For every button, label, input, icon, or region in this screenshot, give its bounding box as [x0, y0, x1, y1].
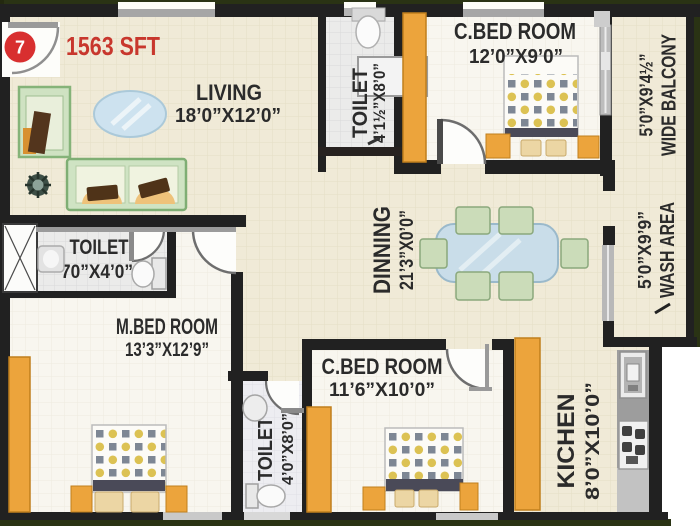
svg-text:LIVING: LIVING — [196, 80, 262, 105]
svg-text:1563 SFT: 1563 SFT — [66, 31, 160, 61]
svg-text:4’0”X8’0”: 4’0”X8’0” — [280, 413, 297, 485]
svg-text:8’0”X10’0”: 8’0”X10’0” — [583, 382, 604, 500]
svg-text:5’0”X9’4½”: 5’0”X9’4½” — [637, 54, 657, 137]
svg-text:TOILET: TOILET — [70, 236, 129, 259]
svg-text:13’3”X12’9”: 13’3”X12’9” — [125, 340, 209, 361]
svg-text:TOILET: TOILET — [255, 417, 277, 481]
svg-text:C.BED ROOM: C.BED ROOM — [454, 18, 576, 44]
svg-text:18’0”X12’0”: 18’0”X12’0” — [175, 105, 281, 127]
svg-text:WIDE BALCONY: WIDE BALCONY — [659, 33, 681, 156]
svg-text:7: 7 — [15, 38, 25, 58]
svg-text:11’6”X10’0”: 11’6”X10’0” — [329, 380, 435, 401]
svg-text:DINNING: DINNING — [369, 206, 396, 294]
svg-text:KICHEN: KICHEN — [553, 394, 580, 489]
svg-text:C.BED ROOM: C.BED ROOM — [322, 354, 443, 379]
svg-text:WASH AREA: WASH AREA — [657, 202, 679, 298]
svg-text:TOILET: TOILET — [349, 68, 372, 138]
svg-text:M.BED ROOM: M.BED ROOM — [116, 314, 218, 339]
svg-text:21’3”X0’0”: 21’3”X0’0” — [397, 210, 418, 290]
svg-text:70”X4’0”: 70”X4’0” — [61, 262, 133, 283]
svg-text:12’0”X9’0”: 12’0”X9’0” — [469, 46, 563, 68]
svg-text:4’1½”X8’0”: 4’1½”X8’0” — [370, 63, 389, 143]
svg-text:5’0”X9’9”: 5’0”X9’9” — [635, 211, 655, 289]
